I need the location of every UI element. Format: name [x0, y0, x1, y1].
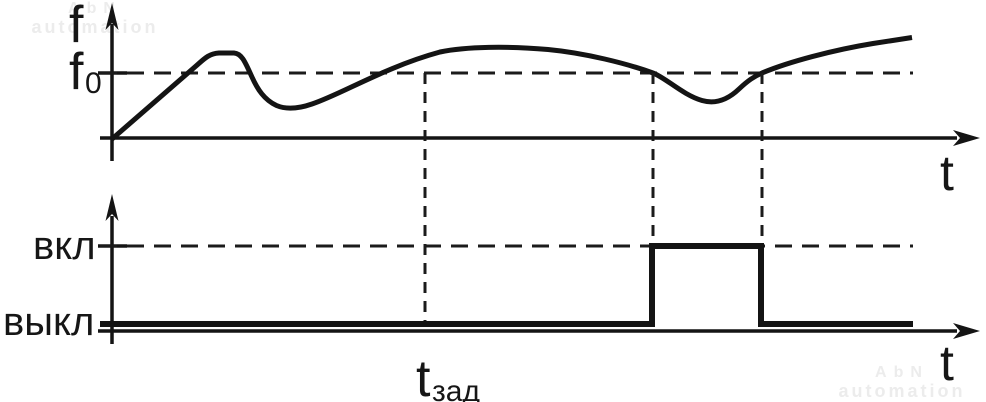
- top-t-axis-label: t: [940, 145, 954, 201]
- bottom-t-axis-label: t: [940, 335, 954, 391]
- diagram-canvas: f f 0 t вкл выкл t зад t: [0, 0, 986, 402]
- f0-threshold-label: f 0: [69, 43, 102, 101]
- frequency-curve: [112, 38, 912, 140]
- labels: f f 0 t вкл выкл t зад t: [3, 0, 954, 402]
- top-chart: [98, 3, 980, 161]
- timing-diagram: AbN automation AbN automation: [0, 0, 986, 402]
- bottom-chart: [98, 194, 980, 344]
- relay-output-signal: [100, 246, 913, 324]
- top-x-axis-arrow-icon: [953, 130, 980, 146]
- on-level-label: вкл: [33, 224, 96, 268]
- guides: [425, 73, 762, 327]
- delay-time-label: t зад: [416, 350, 480, 402]
- bottom-x-axis-arrow-icon: [953, 323, 980, 339]
- off-level-label: выкл: [3, 300, 94, 344]
